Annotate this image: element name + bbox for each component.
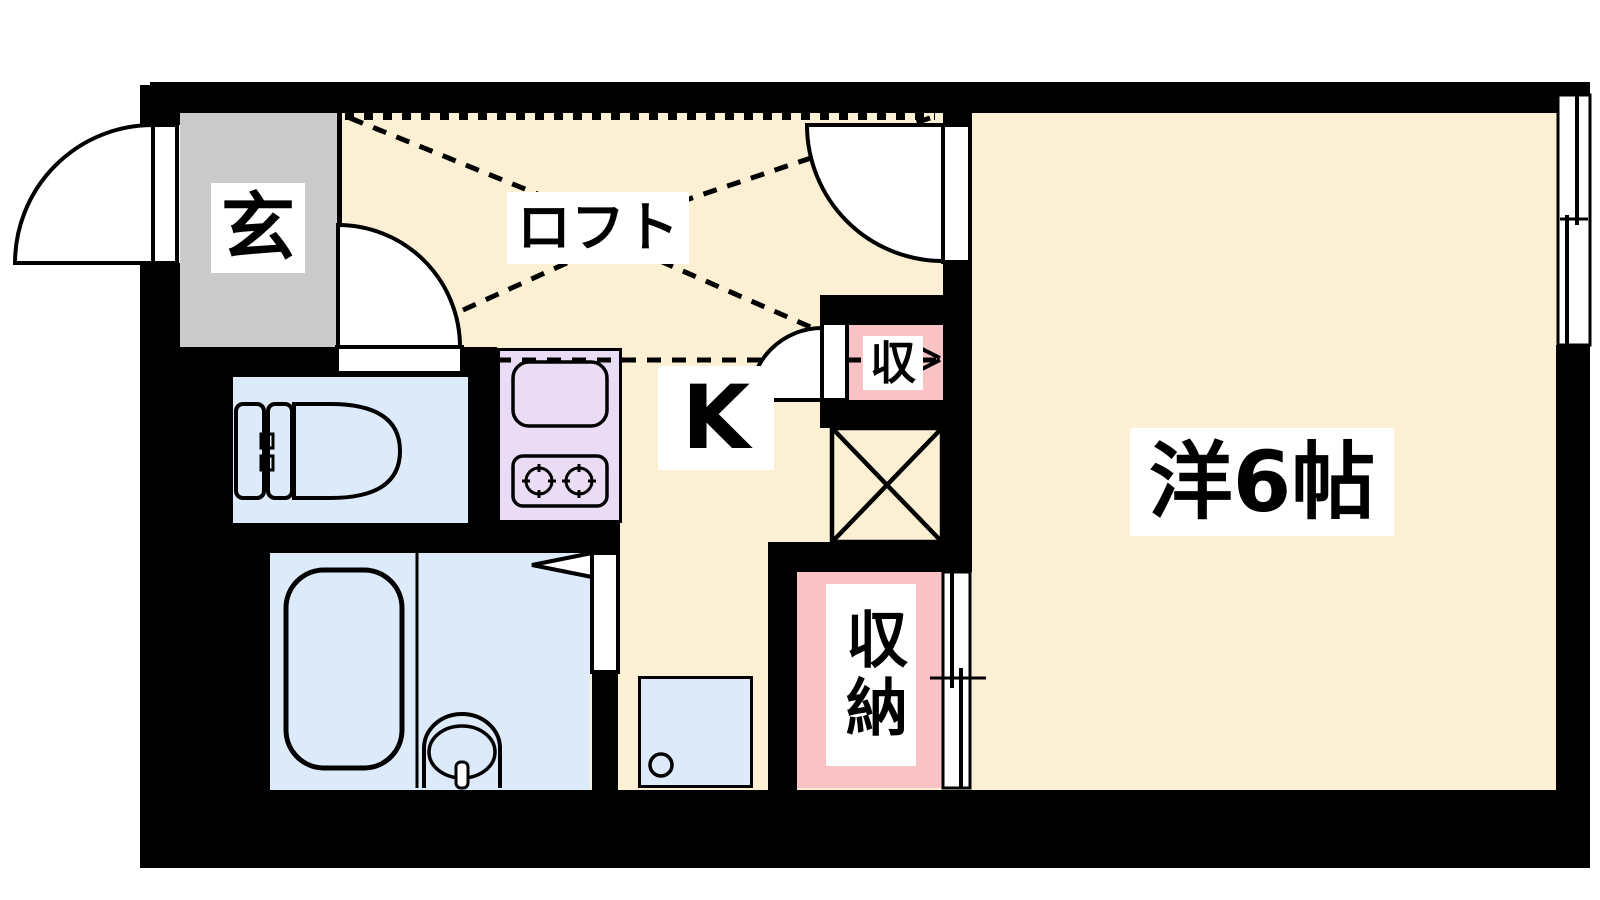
closet-sliding-door-icon bbox=[930, 572, 986, 788]
closet-label: 収納 bbox=[826, 584, 916, 766]
western-room-door bbox=[807, 125, 970, 262]
washbasin-icon bbox=[424, 714, 500, 788]
toilet-door bbox=[337, 225, 462, 373]
loft-label: ロフト bbox=[507, 192, 689, 264]
small-storage-door-leaf bbox=[822, 323, 847, 400]
drain-circle-icon bbox=[650, 754, 672, 776]
bathroom-door bbox=[532, 553, 618, 672]
western-room-label: 洋6帖 bbox=[1130, 428, 1394, 536]
floor-plan: 玄 ロフト K 収 収納 洋6帖 bbox=[0, 0, 1600, 900]
entrance-door-leaf bbox=[153, 125, 177, 263]
bathroom-door-swing-triangle bbox=[532, 553, 592, 577]
sliding-window-icon bbox=[1558, 95, 1590, 345]
small-storage-label: 収 bbox=[863, 336, 923, 390]
entrance-door bbox=[15, 125, 177, 263]
toilet-door-leaf bbox=[337, 347, 462, 373]
x-box-symbol bbox=[832, 428, 942, 542]
western-room-door-swing bbox=[807, 125, 943, 261]
stove-icon bbox=[513, 456, 607, 506]
loft-dash-diag-tl bbox=[350, 118, 552, 200]
bathtub-icon bbox=[286, 570, 402, 768]
kitchen-label: K bbox=[658, 366, 774, 470]
toilet-door-swing bbox=[338, 225, 460, 347]
loft-dash-diag-br bbox=[660, 261, 824, 333]
kitchen-sink-icon bbox=[513, 362, 607, 426]
entrance-door-swing bbox=[15, 125, 153, 263]
western-room-door-leaf bbox=[943, 125, 970, 262]
loft-dash-diag-bl bbox=[463, 257, 580, 310]
toilet-icon bbox=[236, 404, 400, 498]
entrance-label: 玄 bbox=[211, 183, 305, 273]
bathroom-door-leaf bbox=[592, 553, 618, 672]
